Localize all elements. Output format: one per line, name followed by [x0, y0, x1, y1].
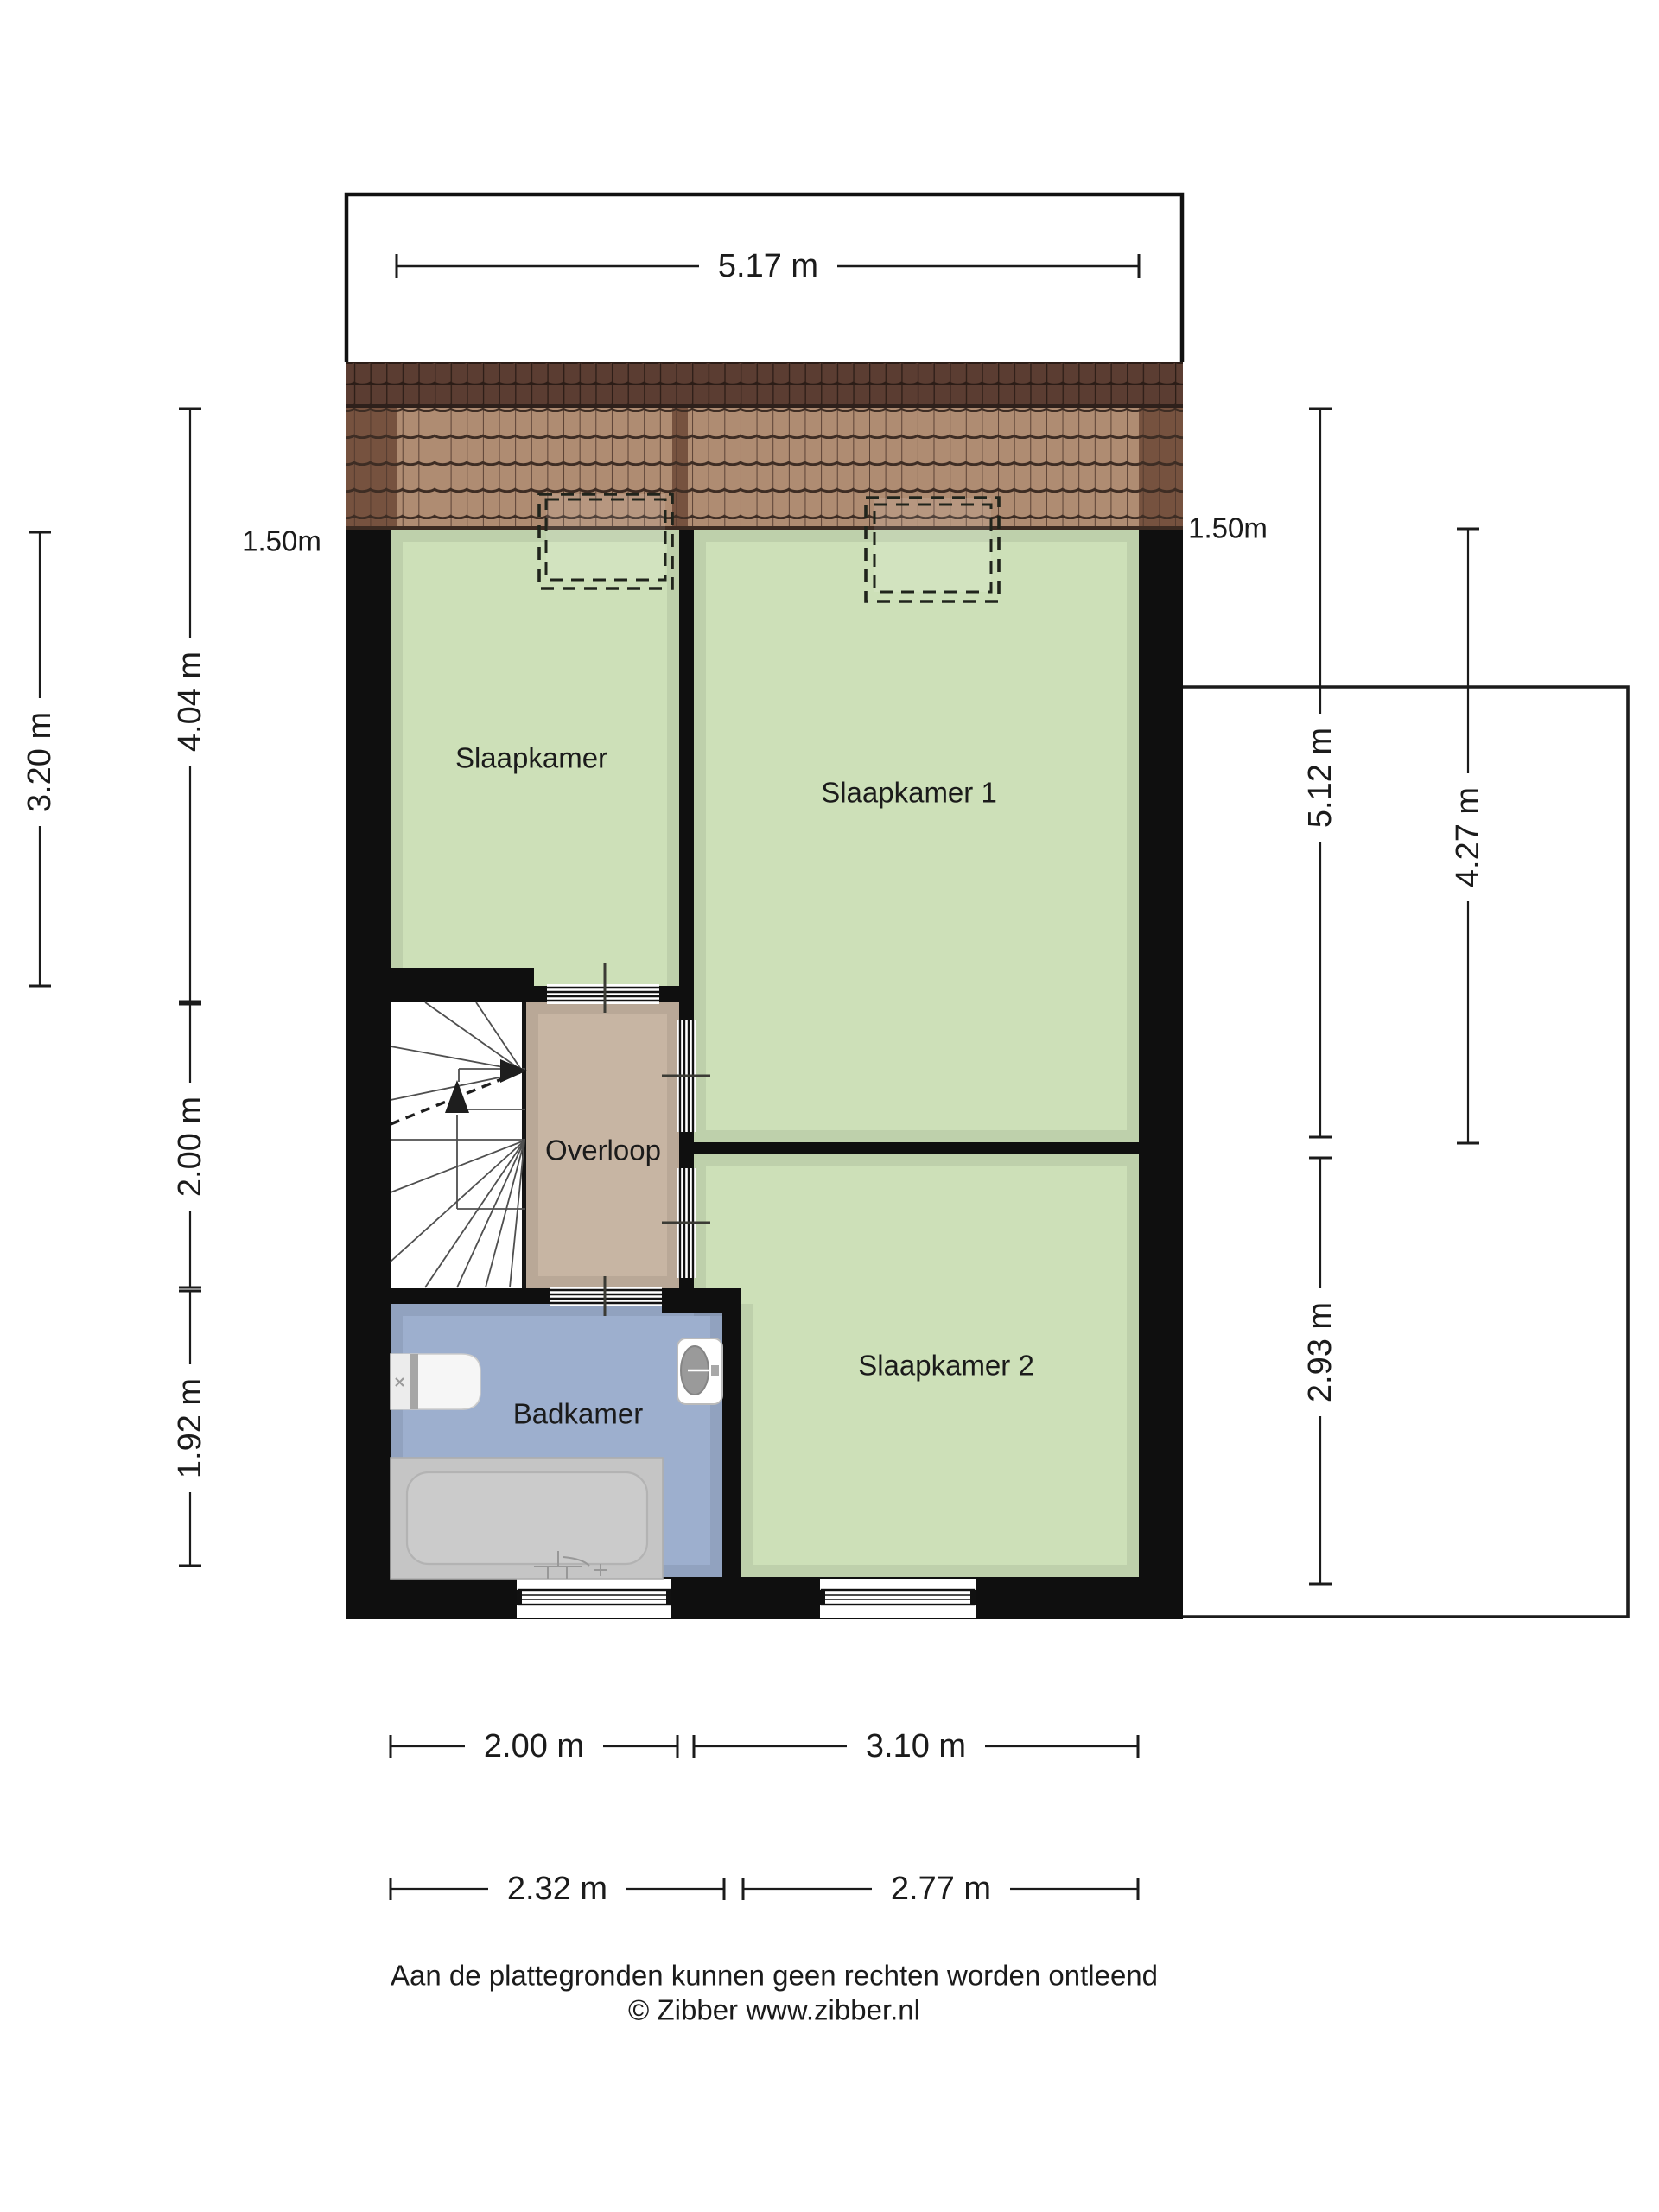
svg-text:2.00 m: 2.00 m	[172, 1096, 208, 1197]
svg-text:4.27 m: 4.27 m	[1450, 787, 1486, 887]
svg-text:4.04 m: 4.04 m	[172, 652, 208, 752]
svg-text:Aan de plattegronden kunnen ge: Aan de plattegronden kunnen geen rechten…	[391, 1960, 1158, 1992]
svg-text:2.32 m: 2.32 m	[507, 1871, 607, 1907]
svg-text:© Zibber www.zibber.nl: © Zibber www.zibber.nl	[628, 1994, 920, 2026]
svg-text:Overloop: Overloop	[545, 1135, 661, 1166]
svg-text:3.20 m: 3.20 m	[22, 712, 58, 812]
svg-text:5.12 m: 5.12 m	[1302, 728, 1338, 828]
svg-text:1.50m: 1.50m	[242, 525, 321, 557]
svg-text:2.00 m: 2.00 m	[484, 1728, 584, 1764]
svg-text:Slaapkamer 1: Slaapkamer 1	[821, 777, 997, 809]
svg-text:5.17 m: 5.17 m	[718, 248, 818, 284]
svg-text:1.50m: 1.50m	[1188, 512, 1268, 544]
svg-text:Slaapkamer 2: Slaapkamer 2	[858, 1350, 1034, 1382]
svg-text:Badkamer: Badkamer	[513, 1398, 643, 1430]
svg-text:1.92 m: 1.92 m	[172, 1378, 208, 1478]
svg-text:3.10 m: 3.10 m	[866, 1728, 966, 1764]
svg-text:2.77 m: 2.77 m	[891, 1871, 991, 1907]
svg-text:2.93 m: 2.93 m	[1302, 1302, 1338, 1402]
svg-text:Slaapkamer: Slaapkamer	[455, 742, 607, 774]
